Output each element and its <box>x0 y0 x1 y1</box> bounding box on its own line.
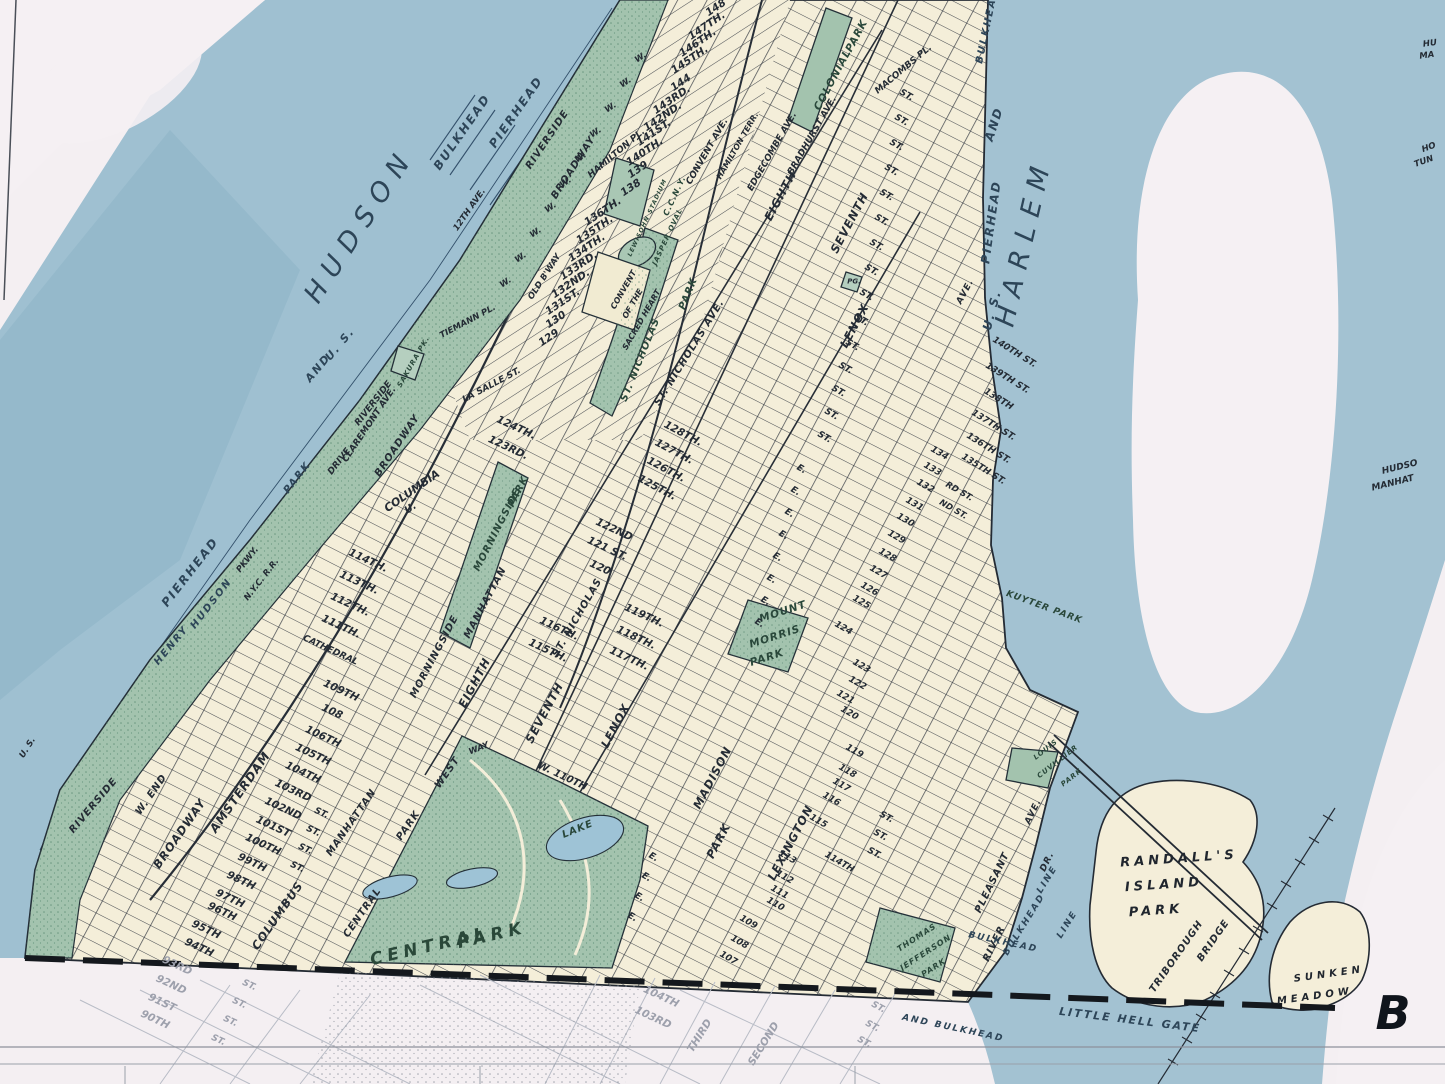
map-label: ST. <box>872 213 889 228</box>
map-label: LEXINGTON <box>766 803 815 882</box>
map-label: 123 <box>851 658 872 675</box>
map-label: MANHATTAN <box>463 566 509 641</box>
map-label: RD ST. <box>944 481 974 503</box>
map-label: SECOND <box>747 1020 782 1067</box>
map-label: U. S. <box>18 736 37 760</box>
map-label: W. <box>499 276 514 290</box>
map-label: 134 <box>929 445 950 462</box>
map-label: 138 <box>619 178 643 199</box>
map-label: 129 <box>537 328 561 349</box>
lake-label: LAKE <box>561 819 595 841</box>
map-label: 109TH <box>322 678 361 704</box>
map-label: 133 <box>922 461 943 478</box>
map-label: 132 <box>915 478 936 495</box>
map-label: MANHAT <box>1371 474 1415 493</box>
map-label: AVE. <box>1024 798 1044 826</box>
map-label: 122 <box>847 675 868 692</box>
map-label: MA <box>1419 51 1435 62</box>
map-label: ND ST. <box>938 499 969 522</box>
map-label: ST. <box>855 1036 872 1051</box>
map-label: 127 <box>868 564 889 581</box>
map-label: E. <box>771 552 784 565</box>
map-label: MEADOW <box>1276 987 1353 1008</box>
map-label: PARK <box>678 277 700 312</box>
map-label: E. <box>640 872 653 885</box>
map-label: W. <box>604 101 619 115</box>
atlas-map-photo: HUDSONBULKHEADPIERHEAD12TH AVE.RIVERSIDE… <box>0 0 1445 1084</box>
map-label: E. <box>765 574 778 587</box>
map-label: ST. <box>231 997 248 1011</box>
map-label: PARK <box>1128 903 1183 920</box>
map-label: PLEASANT <box>974 851 1012 915</box>
map-label: W. <box>529 226 544 240</box>
map-label: 104TH <box>642 984 681 1010</box>
map-label: W. <box>634 51 649 65</box>
st-nicholas-park-label: ST. NICHOLAS <box>620 317 663 403</box>
map-label: ST. <box>815 430 832 445</box>
map-label: 94TH <box>183 937 215 959</box>
map-label: W. END <box>134 773 169 817</box>
map-label: ST. <box>829 384 846 399</box>
map-label: ST. <box>241 979 258 993</box>
map-label: TUN <box>1413 155 1435 170</box>
map-label: PARK <box>456 920 528 952</box>
map-label: 129 <box>886 529 907 546</box>
map-label: E. <box>777 530 790 543</box>
map-label: EIGHTH <box>763 169 799 223</box>
map-label: E. <box>783 508 796 521</box>
map-label: 114TH. <box>347 547 389 574</box>
map-label: ST. <box>305 825 322 839</box>
map-label: LA SALLE ST. <box>461 367 522 405</box>
randalls-island-label: RANDALL'S <box>1120 848 1238 869</box>
map-label: BULKHEAD <box>975 0 1001 65</box>
map-label: W. <box>514 251 529 265</box>
map-label: 103RD <box>633 1005 673 1031</box>
map-label: ST. <box>313 807 330 821</box>
map-label: W. 110TH <box>536 761 589 793</box>
map-label: 128 <box>877 547 898 564</box>
map-label: PKWY. <box>235 546 260 575</box>
map-labels-layer: HUDSONBULKHEADPIERHEAD12TH AVE.RIVERSIDE… <box>0 0 1445 1084</box>
map-label: PIERHEAD <box>487 74 545 150</box>
map-label: 93RD <box>161 955 194 978</box>
map-label: SEVENTH <box>829 191 871 256</box>
map-label: PG. <box>847 279 861 286</box>
map-label: AND <box>983 105 1005 142</box>
map-label: 112TH. <box>329 591 371 618</box>
map-label: 131 <box>904 496 925 513</box>
map-label: E. <box>789 486 802 499</box>
map-label: 99TH <box>236 852 268 874</box>
map-label: ST. <box>297 843 314 857</box>
plate-letter-b: B <box>1375 990 1410 1036</box>
map-label: 117TH. <box>608 645 650 672</box>
map-label: MANHATTAN <box>325 788 379 859</box>
map-label: LENOX <box>600 702 633 750</box>
map-label: ST. <box>862 263 879 278</box>
map-label: ST. <box>877 188 894 203</box>
map-label: 126 <box>859 581 880 598</box>
map-label: 123RD. <box>486 434 529 462</box>
map-label: ST. <box>867 238 884 253</box>
map-label: ST. <box>210 1034 227 1048</box>
map-label: 113TH. <box>338 569 380 596</box>
map-label: 120 <box>588 559 612 578</box>
hudson-river-label: HUDSON <box>300 142 420 307</box>
map-label: CENTRAL <box>342 886 384 939</box>
map-label: PIERHEAD <box>979 179 1003 264</box>
map-label: LINE <box>1056 910 1080 941</box>
map-label: 90TH <box>139 1009 171 1031</box>
map-label: 107 <box>718 950 739 967</box>
map-label: EIGHTH <box>457 656 493 710</box>
map-label: ST. <box>843 338 860 353</box>
map-label: ST. <box>836 361 853 376</box>
map-label: ST. NICHOLAS AVE. <box>653 298 727 408</box>
map-label: 125 <box>851 594 872 611</box>
map-label: BROADWAY <box>374 413 423 479</box>
map-label: 95TH <box>190 919 222 941</box>
map-label: ST. <box>822 407 839 422</box>
map-label: ST. <box>877 811 894 826</box>
map-label: E. <box>647 852 660 865</box>
map-label: U. <box>403 501 419 516</box>
map-label: AND BULKHEAD <box>901 1014 1005 1044</box>
map-label: ISLAND <box>1125 876 1204 894</box>
map-label: 119 <box>844 743 865 760</box>
map-label: SAKURA PK. <box>397 335 432 389</box>
map-label: HU <box>1422 39 1437 49</box>
map-label: ST. <box>289 861 306 875</box>
map-label: TIEMANN PL. <box>439 304 498 341</box>
map-label: 140TH ST. <box>990 336 1037 370</box>
map-label: MORNINGSIDE <box>409 614 461 700</box>
map-label: 111TH. <box>320 613 362 640</box>
map-label: 108 <box>320 703 344 722</box>
little-hell-gate-label: LITTLE HELL GATE <box>1058 1006 1201 1034</box>
map-label: 120 <box>839 705 860 722</box>
map-label: HENRY <box>153 625 191 668</box>
map-label: HUDSO <box>1381 459 1419 477</box>
map-label: ST. NICHOLAS <box>551 577 604 659</box>
map-label: MADISON <box>692 745 734 811</box>
map-label: HO <box>1421 142 1437 155</box>
map-label: SEVENTH <box>524 681 566 746</box>
map-label: BULKHEAD <box>431 92 492 172</box>
map-label: ST. <box>871 829 888 844</box>
map-label: ST. <box>882 163 899 178</box>
map-label: E. <box>626 912 639 925</box>
map-label: E. <box>633 892 646 905</box>
map-label: U. S. <box>323 326 357 363</box>
map-label: ST. <box>865 847 882 862</box>
map-label: KUYTER PARK <box>1005 590 1084 626</box>
map-label: ST. <box>869 1001 886 1016</box>
map-label: PARK <box>395 809 422 842</box>
map-label: WEST <box>434 755 463 790</box>
map-label: ST. <box>887 138 904 153</box>
map-label: PARK <box>282 460 313 496</box>
map-label: 130 <box>895 512 916 529</box>
map-label: BROADWAY <box>152 797 208 871</box>
map-label: PARK <box>844 18 870 54</box>
map-label: PARK <box>1060 768 1084 789</box>
map-label: 114TH <box>823 851 856 875</box>
map-label: THIRD <box>686 1018 714 1055</box>
map-label: 116 <box>821 791 842 808</box>
map-label: W. <box>544 201 559 215</box>
map-label: PARK <box>749 648 786 669</box>
map-label: COLUMBUS <box>250 880 305 952</box>
map-label: PARK <box>920 957 948 979</box>
map-label: ST. <box>892 113 909 128</box>
map-label: 117 <box>831 777 852 794</box>
map-label: RIVERSIDE <box>525 109 572 172</box>
map-label: ST. <box>863 1020 880 1035</box>
map-label: 98TH <box>225 870 257 892</box>
map-label: E. <box>795 464 808 477</box>
map-label: RIVERSIDE <box>68 776 120 835</box>
map-label: E. <box>753 618 766 631</box>
map-label: PARK <box>705 822 733 861</box>
map-label: E. <box>759 596 772 609</box>
map-label: ST. <box>222 1015 239 1029</box>
map-label: 138TH <box>982 388 1014 413</box>
map-label: ST. <box>897 88 914 103</box>
map-label: 109 <box>738 914 759 931</box>
map-label: 121 <box>835 689 856 706</box>
sunken-meadow-label: SUNKEN <box>1293 965 1364 985</box>
map-label: HUDSON <box>189 577 234 631</box>
map-label: 119TH. <box>623 602 665 629</box>
map-label: 92ND <box>154 973 188 996</box>
map-label: 12TH AVE. <box>452 187 487 232</box>
map-label: W. <box>619 76 634 90</box>
map-label: AVE. <box>956 278 977 306</box>
map-label: CATHEDRAL <box>301 634 359 667</box>
map-label: WAY <box>468 741 491 757</box>
map-label: 115 <box>808 813 829 830</box>
map-label: 124 <box>833 620 854 637</box>
map-label: 112 <box>774 869 795 886</box>
map-label: 108 <box>729 934 750 951</box>
